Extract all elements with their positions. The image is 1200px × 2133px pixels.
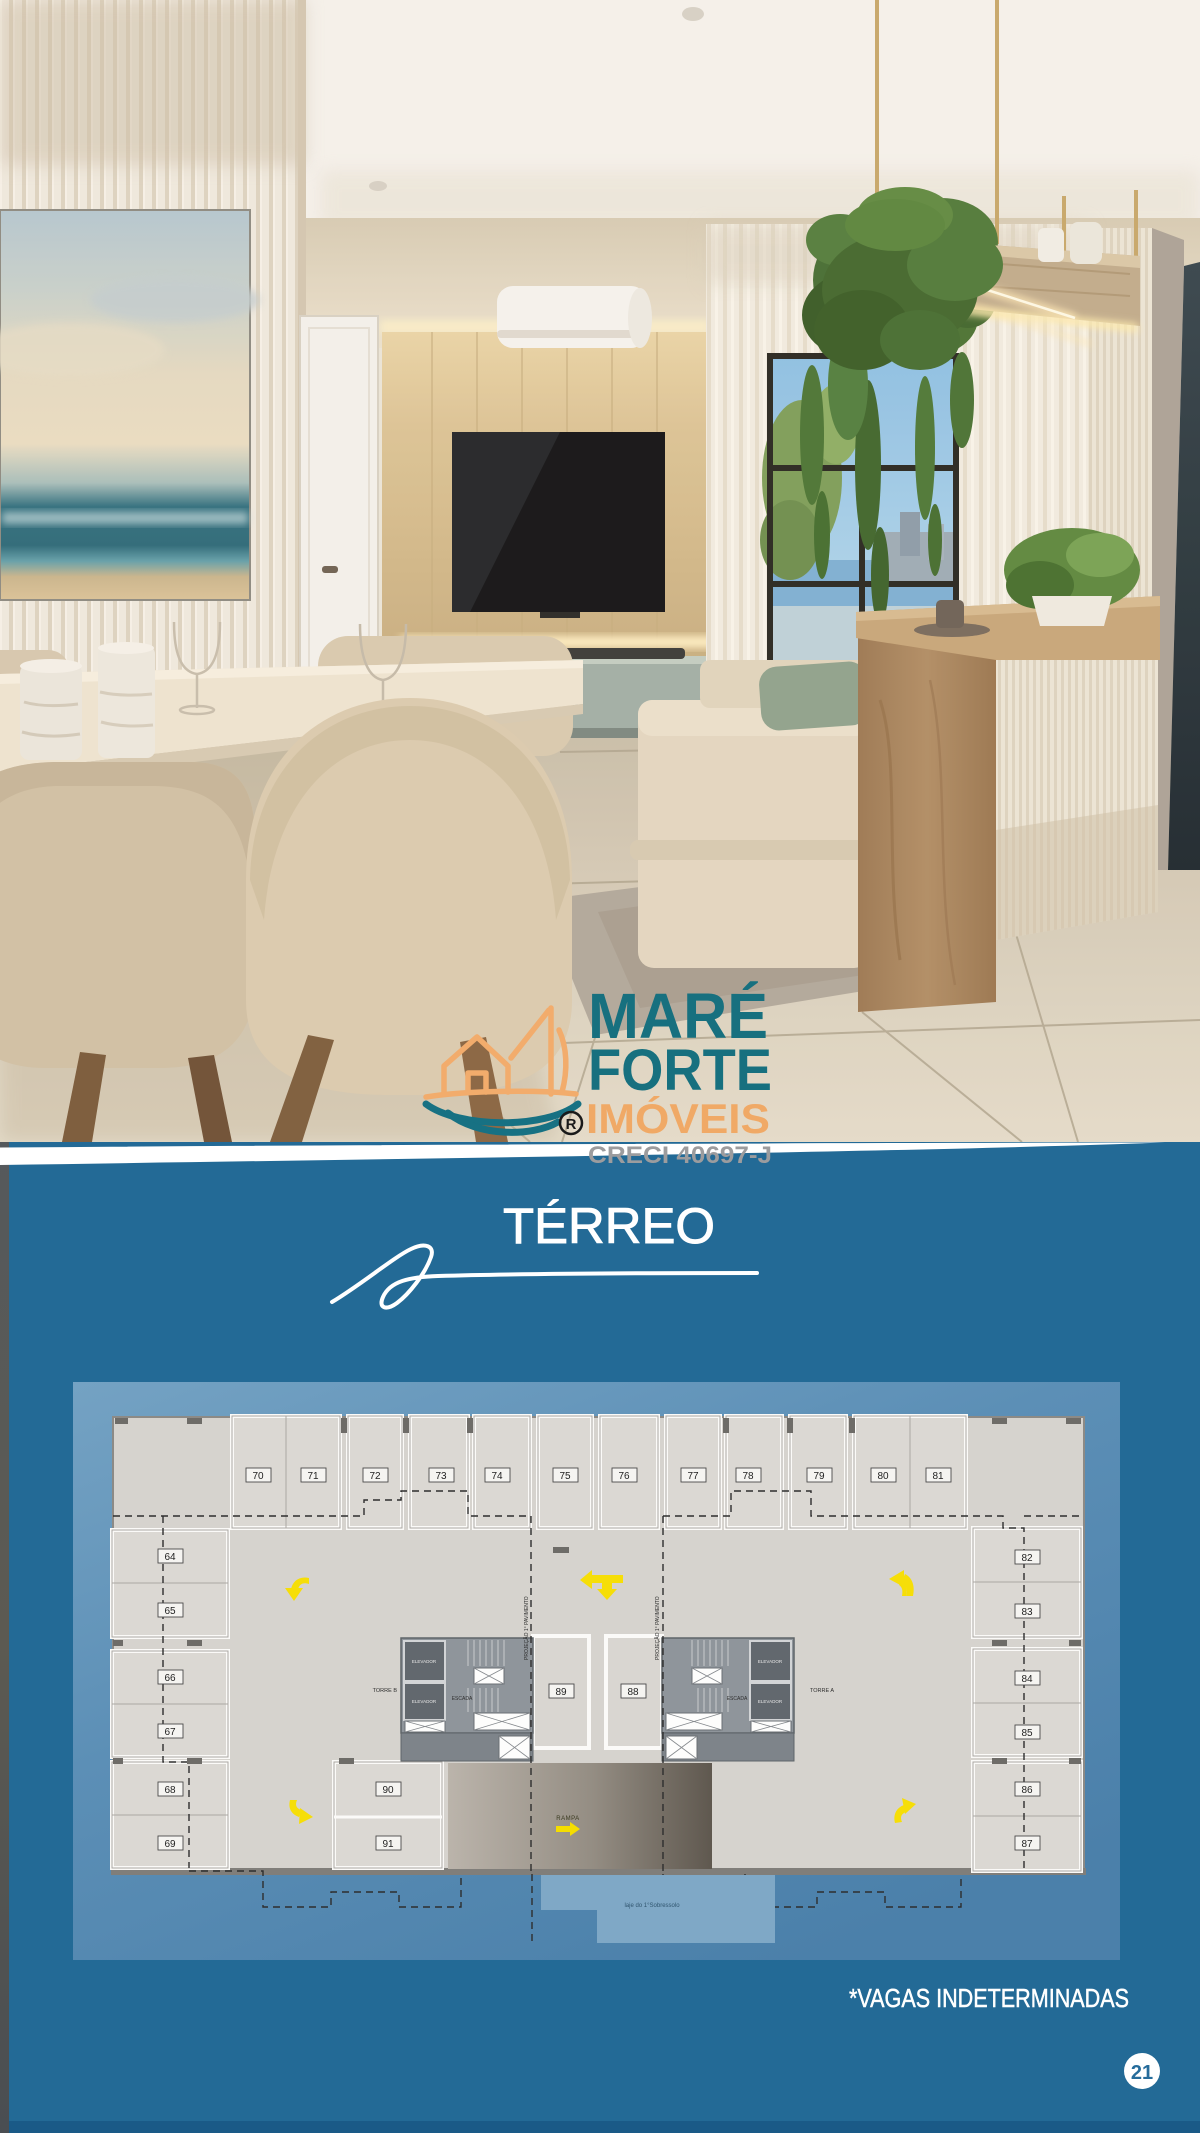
svg-text:89: 89 — [555, 1687, 567, 1698]
svg-text:67: 67 — [164, 1727, 176, 1738]
svg-text:ELEVADOR: ELEVADOR — [412, 1699, 437, 1704]
svg-text:91: 91 — [382, 1839, 394, 1850]
svg-text:TÉRREO: TÉRREO — [503, 1198, 715, 1254]
svg-text:80: 80 — [877, 1471, 889, 1482]
svg-text:ESCADA: ESCADA — [452, 1696, 473, 1702]
svg-text:R: R — [566, 1116, 577, 1133]
svg-text:ESCADA: ESCADA — [727, 1696, 748, 1702]
svg-text:82: 82 — [1021, 1553, 1033, 1564]
svg-text:81: 81 — [932, 1471, 944, 1482]
svg-text:CRECI 40697-J: CRECI 40697-J — [588, 1142, 772, 1169]
svg-text:TORRE A: TORRE A — [810, 1688, 834, 1694]
svg-text:77: 77 — [687, 1471, 699, 1482]
svg-text:69: 69 — [164, 1839, 176, 1850]
svg-text:70: 70 — [252, 1471, 264, 1482]
svg-text:71: 71 — [307, 1471, 319, 1482]
svg-text:90: 90 — [382, 1785, 394, 1796]
svg-text:PROJEÇÃO 1° PAVIMENTO: PROJEÇÃO 1° PAVIMENTO — [654, 1596, 661, 1660]
svg-text:88: 88 — [627, 1687, 639, 1698]
svg-text:21: 21 — [1131, 2062, 1153, 2084]
svg-text:TORRE B: TORRE B — [373, 1688, 398, 1694]
svg-text:84: 84 — [1021, 1674, 1033, 1685]
svg-text:laje do 1°Sobressolo: laje do 1°Sobressolo — [624, 1903, 680, 1909]
svg-text:73: 73 — [435, 1471, 447, 1482]
svg-text:64: 64 — [164, 1552, 176, 1563]
svg-text:83: 83 — [1021, 1607, 1033, 1618]
svg-text:72: 72 — [369, 1471, 381, 1482]
svg-text:RAMPA: RAMPA — [556, 1816, 579, 1822]
svg-text:78: 78 — [742, 1471, 754, 1482]
svg-text:65: 65 — [164, 1606, 176, 1617]
svg-text:ELEVADOR: ELEVADOR — [758, 1699, 783, 1704]
svg-text:87: 87 — [1021, 1839, 1033, 1850]
svg-text:75: 75 — [559, 1471, 571, 1482]
svg-text:FORTE: FORTE — [588, 1038, 772, 1103]
svg-text:66: 66 — [164, 1673, 176, 1684]
svg-text:76: 76 — [618, 1471, 630, 1482]
svg-text:ELEVADOR: ELEVADOR — [412, 1659, 437, 1664]
svg-text:85: 85 — [1021, 1728, 1033, 1739]
svg-text:IMÓVEIS: IMÓVEIS — [586, 1094, 770, 1142]
svg-text:PROJEÇÃO 1° PAVIMENTO: PROJEÇÃO 1° PAVIMENTO — [523, 1596, 530, 1660]
svg-text:68: 68 — [164, 1785, 176, 1796]
svg-text:ELEVADOR: ELEVADOR — [758, 1659, 783, 1664]
svg-text:86: 86 — [1021, 1785, 1033, 1796]
svg-text:74: 74 — [491, 1471, 503, 1482]
svg-text:*VAGAS INDETERMINADAS: *VAGAS INDETERMINADAS — [849, 1983, 1129, 2013]
svg-text:79: 79 — [813, 1471, 825, 1482]
